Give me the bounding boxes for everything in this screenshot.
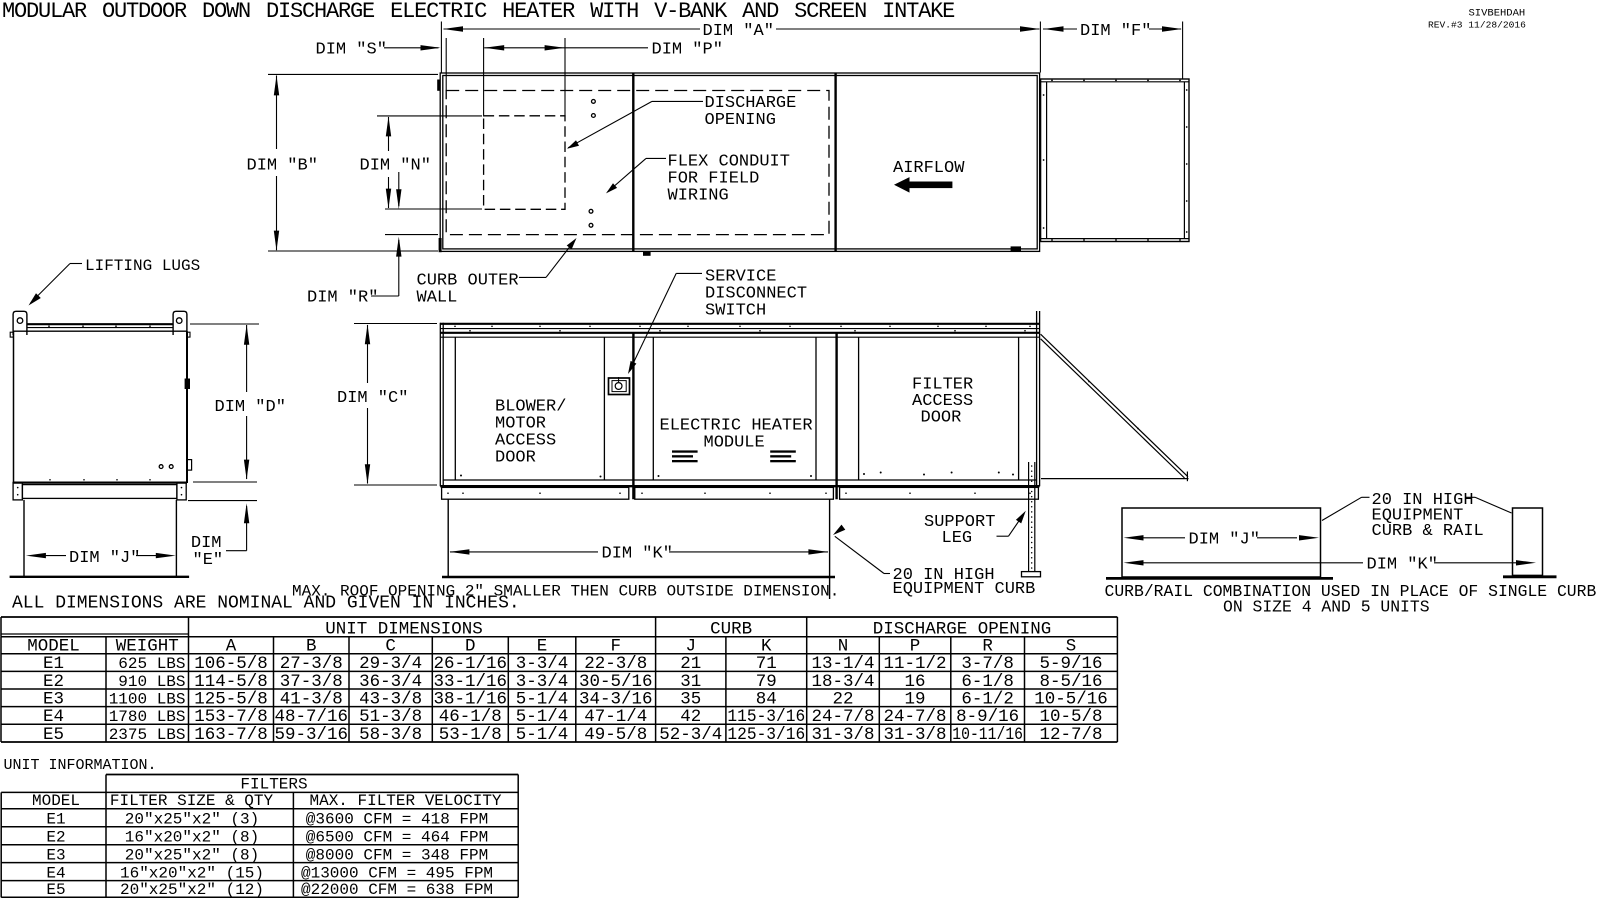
- svg-text:WIRING: WIRING: [668, 186, 729, 205]
- svg-text:625 LBS: 625 LBS: [118, 655, 185, 673]
- svg-text:163-7/8: 163-7/8: [194, 725, 268, 745]
- svg-text:31-3/8: 31-3/8: [811, 725, 874, 745]
- svg-text:DIM "P": DIM "P": [652, 41, 723, 60]
- svg-text:20"x25"x2" (8): 20"x25"x2" (8): [125, 846, 259, 864]
- svg-text:2375 LBS: 2375 LBS: [109, 726, 186, 744]
- svg-text:DIM "F": DIM "F": [1080, 22, 1151, 41]
- svg-text:DIM "C": DIM "C": [337, 389, 408, 408]
- svg-text:@6500 CFM = 464 FPM: @6500 CFM = 464 FPM: [306, 828, 488, 846]
- svg-text:125-3/16: 125-3/16: [727, 725, 805, 745]
- svg-text:FILTERS: FILTERS: [240, 776, 307, 794]
- svg-text:DIM "K": DIM "K": [1367, 556, 1438, 575]
- svg-text:AIRFLOW: AIRFLOW: [893, 159, 965, 178]
- svg-text:5-1/4: 5-1/4: [516, 725, 569, 745]
- svg-text:WALL: WALL: [417, 288, 458, 307]
- svg-text:E2: E2: [46, 828, 65, 846]
- svg-text:E5: E5: [46, 881, 65, 898]
- svg-text:DIM "B": DIM "B": [247, 156, 318, 175]
- svg-text:DIM "S": DIM "S": [316, 41, 387, 60]
- svg-text:"E": "E": [193, 551, 224, 570]
- svg-text:DIM "A": DIM "A": [703, 22, 774, 41]
- svg-text:@22000 CFM = 638 FPM: @22000 CFM = 638 FPM: [301, 881, 493, 898]
- svg-text:49-5/8: 49-5/8: [584, 725, 647, 745]
- svg-text:UNIT DIMENSIONS: UNIT DIMENSIONS: [325, 619, 483, 639]
- svg-text:58-3/8: 58-3/8: [359, 725, 422, 745]
- svg-text:53-1/8: 53-1/8: [439, 725, 502, 745]
- svg-text:FILTER SIZE & QTY: FILTER SIZE & QTY: [110, 792, 274, 810]
- svg-text:@13000 CFM = 495 FPM: @13000 CFM = 495 FPM: [301, 864, 493, 882]
- svg-text:MAX. FILTER VELOCITY: MAX. FILTER VELOCITY: [309, 792, 501, 810]
- svg-text:MODULAR OUTDOOR DOWN DISCHARGE: MODULAR OUTDOOR DOWN DISCHARGE ELECTRIC …: [2, 0, 955, 24]
- svg-text:31-3/8: 31-3/8: [884, 725, 947, 745]
- svg-text:MODEL: MODEL: [32, 792, 80, 810]
- svg-text:LIFTING LUGS: LIFTING LUGS: [85, 257, 200, 275]
- svg-text:OPENING: OPENING: [705, 111, 776, 130]
- svg-text:16"x20"x2" (8): 16"x20"x2" (8): [125, 828, 259, 846]
- svg-text:20"x25"x2" (12): 20"x25"x2" (12): [120, 881, 264, 898]
- svg-text:E5: E5: [43, 725, 64, 745]
- svg-text:DISCHARGE OPENING: DISCHARGE OPENING: [873, 619, 1052, 639]
- svg-text:SWITCH: SWITCH: [705, 301, 766, 320]
- svg-text:SIVBEHDAH: SIVBEHDAH: [1469, 8, 1526, 20]
- svg-text:ALL DIMENSIONS ARE NOMINAL AND: ALL DIMENSIONS ARE NOMINAL AND GIVEN IN …: [12, 594, 520, 614]
- svg-text:910 LBS: 910 LBS: [118, 673, 185, 691]
- svg-text:EQUIPMENT CURB: EQUIPMENT CURB: [893, 580, 1036, 599]
- svg-text:DIM "J": DIM "J": [69, 549, 140, 568]
- svg-text:52-3/4: 52-3/4: [659, 725, 722, 745]
- svg-text:LEG: LEG: [942, 529, 973, 548]
- svg-text:CURB: CURB: [710, 619, 752, 639]
- svg-text:WEIGHT: WEIGHT: [116, 636, 179, 656]
- svg-text:DIM "N": DIM "N": [360, 156, 431, 175]
- svg-text:CURB & RAIL: CURB & RAIL: [1372, 522, 1484, 541]
- svg-text:59-3/16: 59-3/16: [274, 725, 348, 745]
- svg-text:E3: E3: [46, 846, 65, 864]
- svg-text:E4: E4: [46, 864, 65, 882]
- svg-text:DIM "R": DIM "R": [307, 288, 378, 307]
- svg-text:E1: E1: [46, 810, 65, 828]
- svg-text:1100 LBS: 1100 LBS: [109, 690, 186, 708]
- svg-text:10-11/16: 10-11/16: [952, 725, 1023, 745]
- svg-text:16"x20"x2" (15): 16"x20"x2" (15): [120, 864, 264, 882]
- svg-text:REV.#3 11/28/2016: REV.#3 11/28/2016: [1428, 20, 1526, 31]
- svg-text:1780 LBS: 1780 LBS: [109, 708, 186, 726]
- svg-text:DIM "K": DIM "K": [602, 545, 673, 564]
- svg-text:DOOR: DOOR: [921, 409, 962, 428]
- svg-text:20"x25"x2" (3): 20"x25"x2" (3): [125, 810, 259, 828]
- svg-text:12-7/8: 12-7/8: [1039, 725, 1102, 745]
- svg-text:ON SIZE 4 AND 5 UNITS: ON SIZE 4 AND 5 UNITS: [1223, 597, 1430, 616]
- svg-text:DIM "D": DIM "D": [215, 398, 286, 417]
- svg-text:@3600 CFM = 418 FPM: @3600 CFM = 418 FPM: [306, 810, 488, 828]
- svg-text:UNIT INFORMATION.: UNIT INFORMATION.: [4, 757, 157, 774]
- svg-text:@8000 CFM = 348 FPM: @8000 CFM = 348 FPM: [306, 846, 488, 864]
- svg-text:MODULE: MODULE: [704, 433, 765, 452]
- svg-text:DIM "J": DIM "J": [1189, 531, 1260, 550]
- svg-text:DOOR: DOOR: [495, 448, 536, 467]
